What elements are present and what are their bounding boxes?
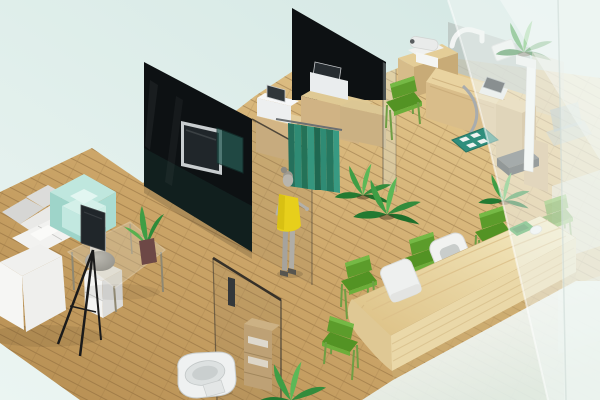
leg: [282, 230, 288, 271]
door-handle: [228, 277, 235, 307]
glass-divider: [383, 62, 396, 192]
hair-bun: [281, 167, 287, 173]
isometric-interior-render: [0, 0, 600, 400]
vase: [139, 238, 157, 265]
leg: [289, 230, 295, 269]
toilet: [178, 352, 236, 398]
screenshot-root: [0, 0, 600, 400]
wall-tv-screen: [184, 125, 219, 171]
